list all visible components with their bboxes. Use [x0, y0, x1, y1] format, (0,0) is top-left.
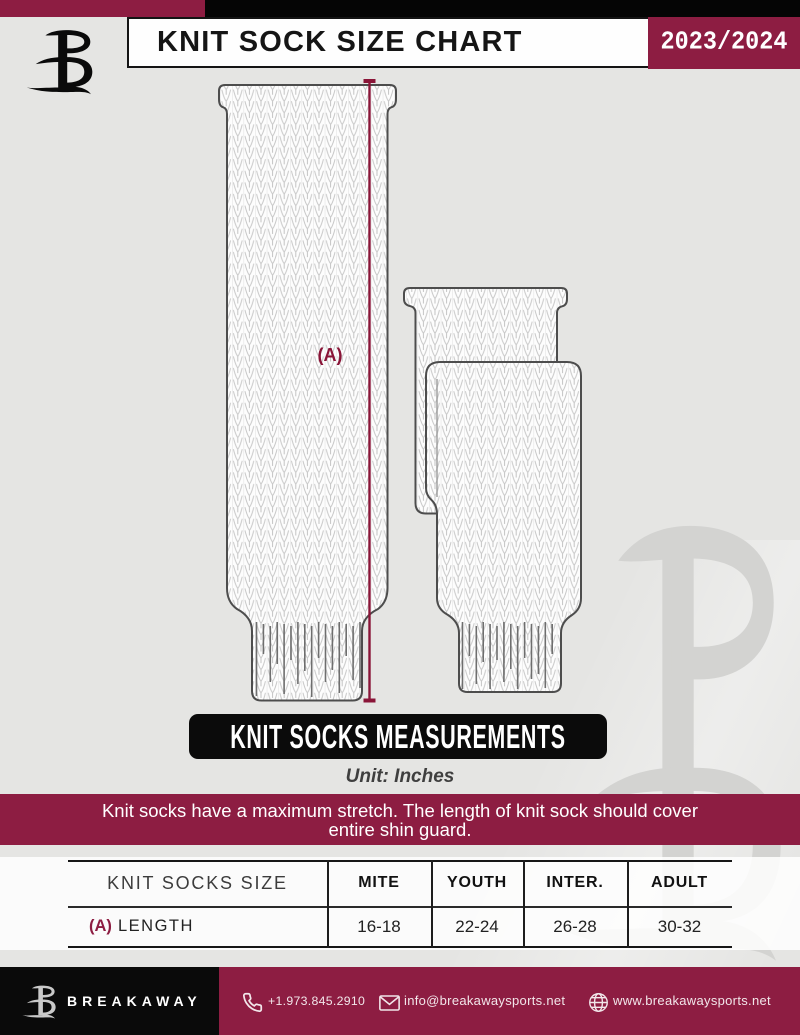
- svg-text:(A): (A): [318, 345, 343, 365]
